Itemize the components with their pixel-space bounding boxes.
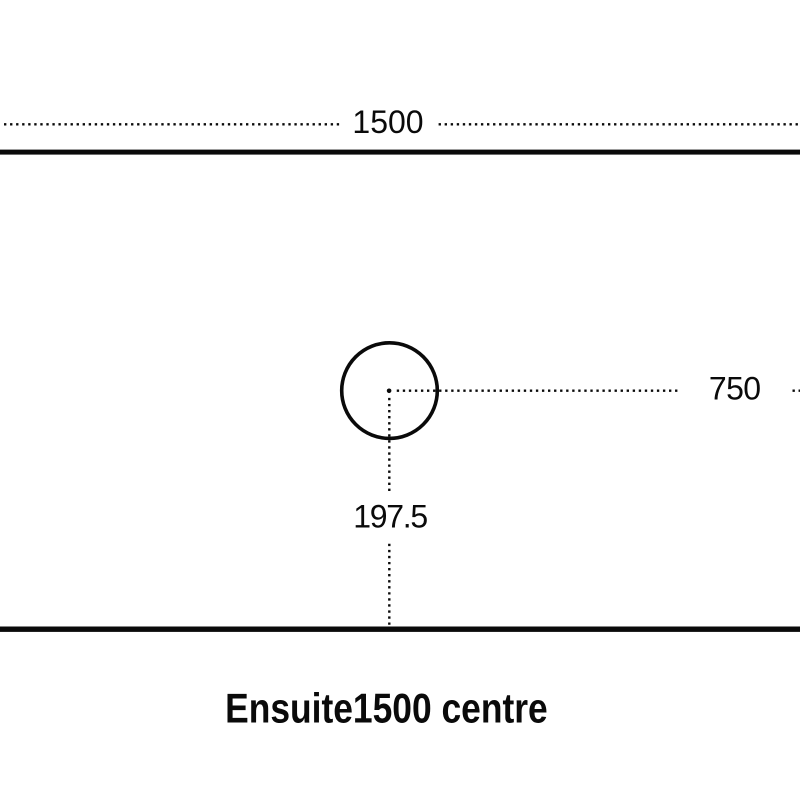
svg-text:750: 750 <box>709 371 761 407</box>
svg-text:197.5: 197.5 <box>353 499 427 535</box>
svg-text:1500: 1500 <box>352 104 423 140</box>
svg-text:Ensuite1500 centre: Ensuite1500 centre <box>225 686 548 732</box>
